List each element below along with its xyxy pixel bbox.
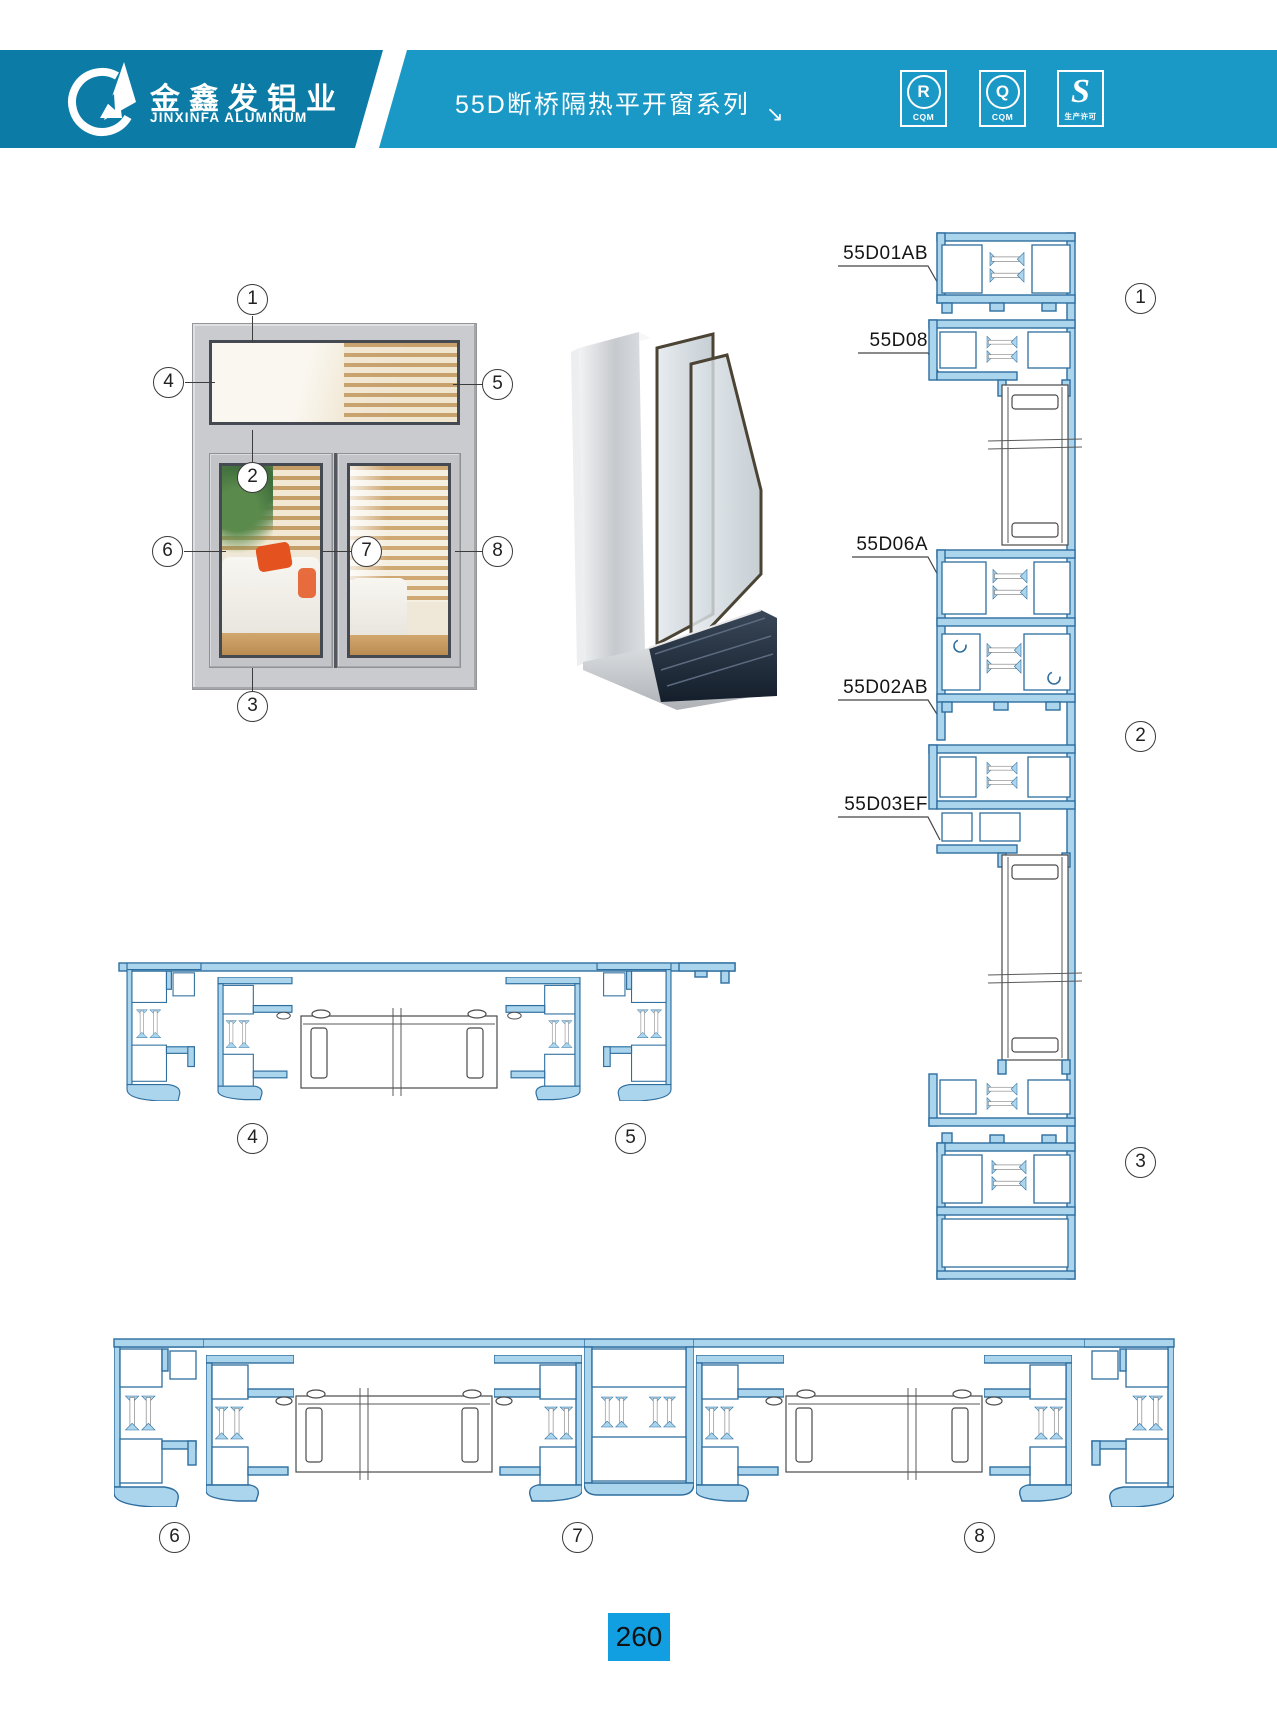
callout-6: 6 [152,536,183,567]
page-number-badge: 260 [608,1613,670,1661]
window-elevation [192,323,477,690]
leader-4 [185,382,215,383]
section-callout-5: 5 [615,1123,646,1154]
corner-section-render [565,318,780,710]
casement-left [209,453,333,668]
photo-floor [222,633,320,655]
cert-letter: S [1071,73,1090,111]
cert-letter: Q [986,75,1020,109]
profile-sill-sash [929,1060,1075,1126]
cert-badge-q-cqm: Q CQM [979,70,1026,127]
leader-3 [252,668,253,692]
callout-1: 1 [237,284,268,315]
transom-glass [209,340,460,425]
profile-label-55D02AB: 55D02AB [843,677,928,699]
profile-label-55D06A: 55D06A [856,534,928,556]
leader-8 [455,551,483,552]
callout-8: 8 [482,536,513,567]
company-name-en: JINXINFA ALUMINUM [150,110,307,125]
vertical-section-drawing [830,225,1090,1290]
series-title: 55D断桥隔热平开窗系列 [455,85,750,121]
catalog-page: 金鑫发铝业 JINXINFA ALUMINUM 55D断桥隔热平开窗系列 ↘ R… [0,0,1277,1721]
glazing-unit [786,1388,982,1480]
section-callout-1: 1 [1125,283,1156,314]
section-callout-7: 7 [562,1522,593,1553]
profile-label-55D08: 55D08 [870,330,929,352]
leader-2 [252,430,253,463]
section-callout-6: 6 [159,1522,190,1553]
photo-blinds [344,343,457,422]
cert-badge-qs-license: S 生产许可 [1057,70,1104,127]
profile-55D02AB [937,634,1075,712]
glazing-unit [988,855,1082,1060]
section-callout-8: 8 [964,1522,995,1553]
callout-4: 4 [153,367,184,398]
glazing-unit [296,1388,492,1480]
photo-pillow [298,568,316,598]
photo-floor [350,635,448,655]
cert-sub: CQM [981,112,1024,122]
cert-badge-r-cqm: R CQM [900,70,947,127]
callout-3: 3 [237,691,268,722]
callout-5: 5 [482,369,513,400]
cert-sub: 生产许可 [1059,111,1102,122]
cert-letter: R [907,75,941,109]
horizontal-section-mid [115,958,740,1133]
profile-55D03EF [929,745,1075,867]
profile-55D01AB [937,233,1075,313]
callout-2: 2 [237,462,268,493]
casement-left-glass [219,463,323,658]
profile-label-55D01AB: 55D01AB [843,243,928,265]
callout-7: 7 [351,536,382,567]
section-callout-3: 3 [1125,1147,1156,1178]
company-logo-icon [66,58,146,142]
arrow-down-right-icon: ↘ [766,102,784,127]
photo-armchair [350,578,407,635]
horizontal-section-bottom [110,1336,1180,1516]
cert-sub: CQM [902,112,945,122]
glazing-unit [988,385,1082,545]
leader-1 [252,316,253,342]
profile-label-55D03EF: 55D03EF [844,794,928,816]
leader-6 [184,551,226,552]
section-callout-2: 2 [1125,721,1156,752]
section-callout-4: 4 [237,1123,268,1154]
glazing-unit [301,1008,497,1096]
leader-5 [453,384,483,385]
profile-sill-frame [937,1133,1075,1279]
leader-7 [322,551,352,552]
